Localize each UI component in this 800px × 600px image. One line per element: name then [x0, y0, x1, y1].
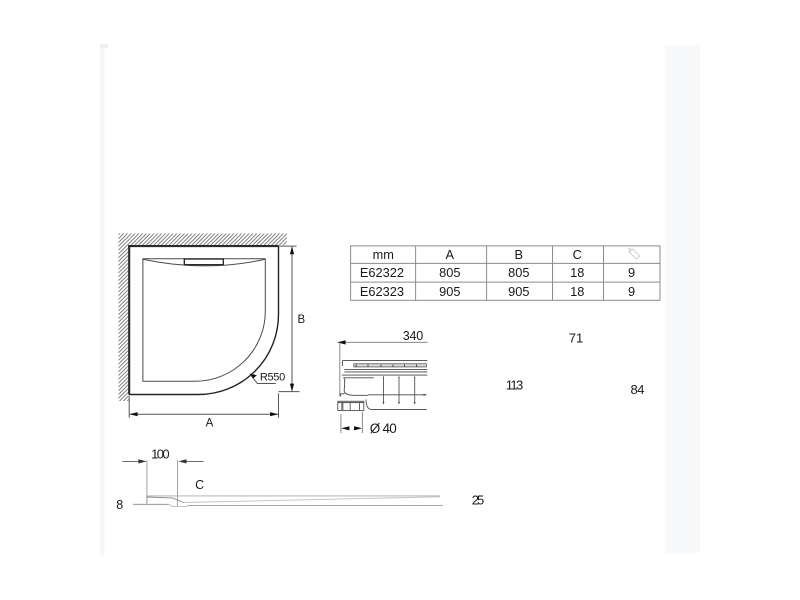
svg-text:905: 905 — [508, 284, 529, 299]
svg-text:25: 25 — [472, 493, 485, 508]
svg-text:A: A — [446, 247, 455, 262]
svg-text:E62323: E62323 — [360, 284, 404, 299]
svg-text:100: 100 — [151, 446, 170, 461]
svg-text:B: B — [515, 247, 524, 262]
svg-text:805: 805 — [508, 265, 529, 280]
svg-text:B: B — [297, 314, 305, 326]
svg-text:R550: R550 — [260, 371, 285, 383]
svg-text:113: 113 — [506, 378, 524, 393]
svg-text:9: 9 — [628, 265, 635, 280]
svg-text:71: 71 — [569, 331, 584, 346]
svg-text:Ø 40: Ø 40 — [370, 421, 397, 436]
svg-text:C: C — [195, 478, 204, 492]
svg-text:C: C — [573, 247, 582, 262]
svg-text:905: 905 — [439, 284, 460, 299]
svg-text:8: 8 — [116, 498, 123, 512]
svg-text:18: 18 — [570, 265, 584, 280]
svg-text:805: 805 — [439, 265, 460, 280]
svg-text:9: 9 — [628, 284, 635, 299]
svg-text:A: A — [206, 418, 214, 430]
svg-text:84: 84 — [631, 382, 645, 397]
svg-text:340: 340 — [403, 329, 424, 343]
svg-text:mm: mm — [373, 247, 394, 262]
svg-text:E62322: E62322 — [360, 265, 404, 280]
svg-text:18: 18 — [570, 284, 584, 299]
